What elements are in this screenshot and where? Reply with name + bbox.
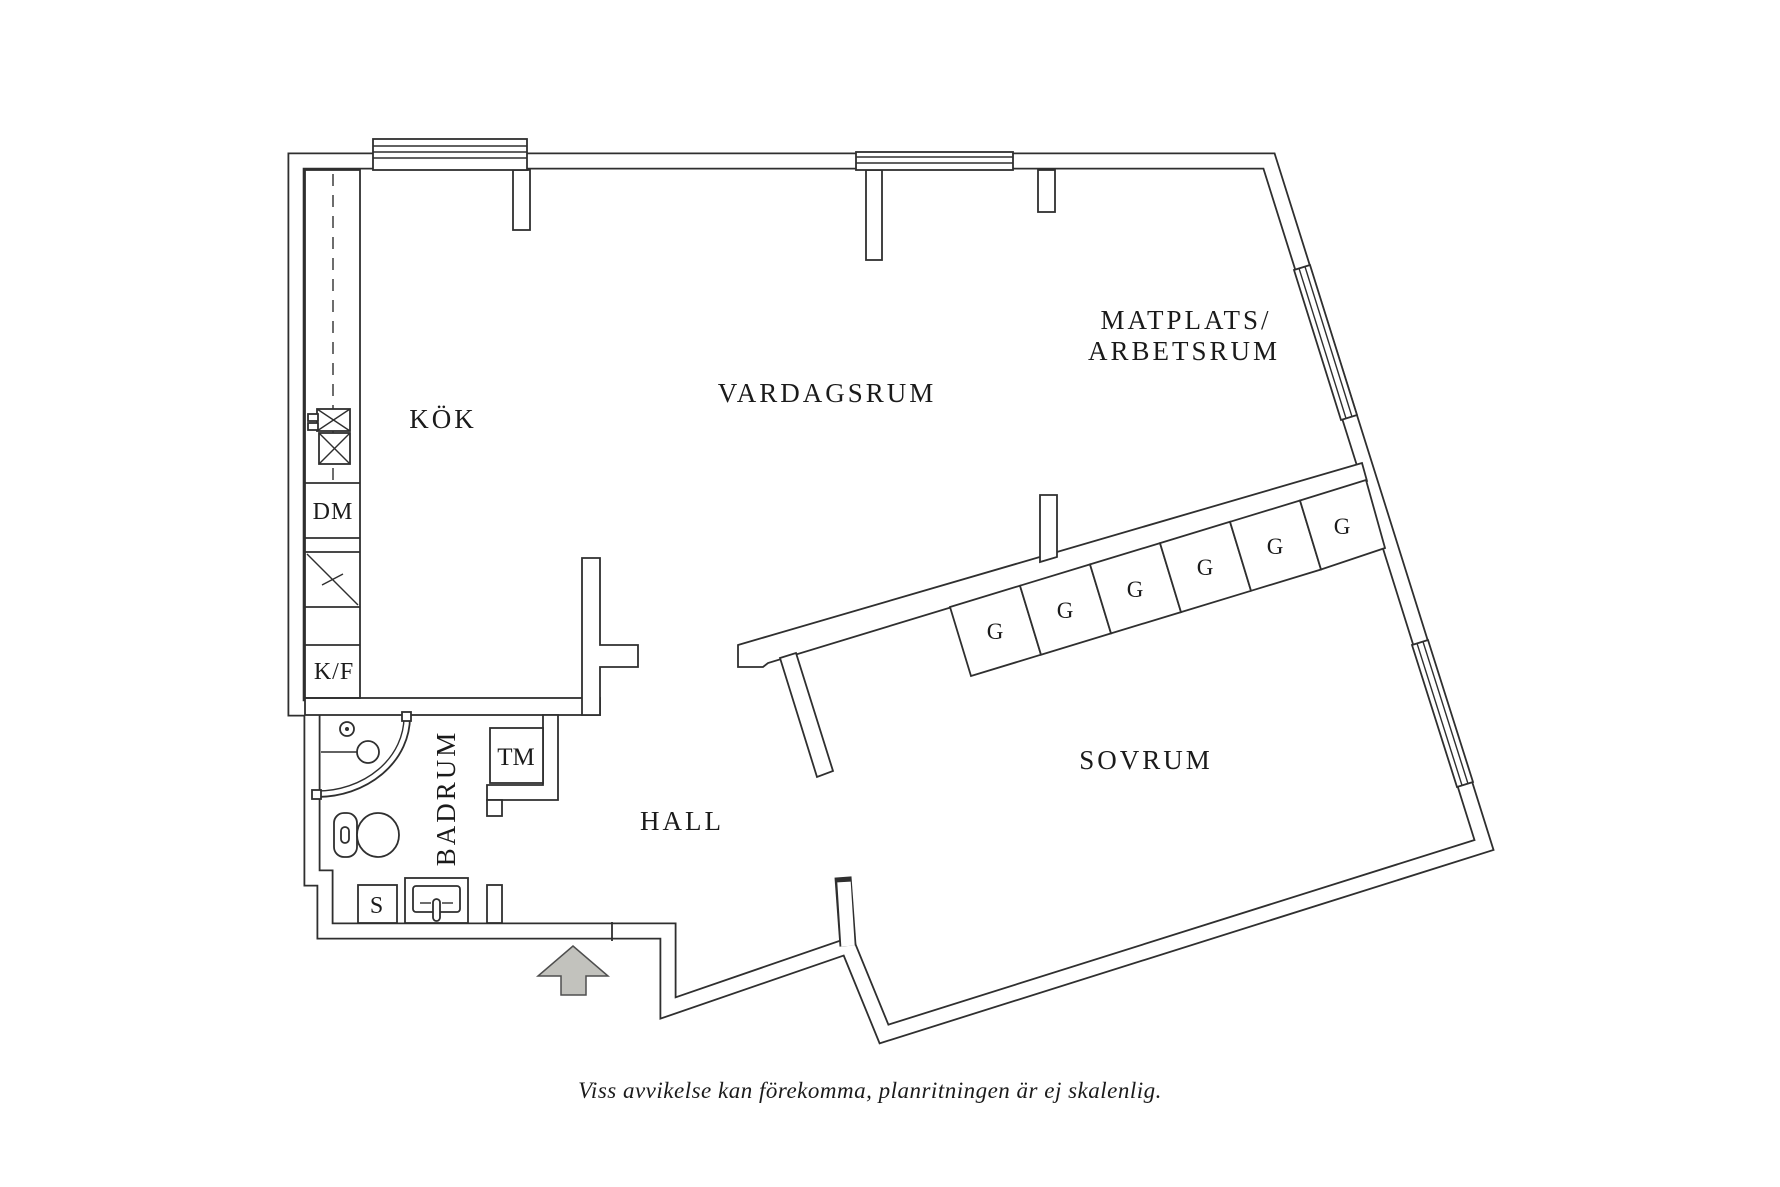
- label-kitchen: KÖK: [409, 404, 477, 434]
- top-wall-pier-1: [513, 170, 530, 230]
- tm-alcove-step: [487, 800, 502, 816]
- label-hall: HALL: [640, 806, 724, 836]
- floor-plan-page: KÖK VARDAGSRUM MATPLATS/ ARBETSRUM SOVRU…: [0, 0, 1780, 1187]
- label-dishwasher: DM: [313, 499, 354, 525]
- label-wardrobe-4: G: [1197, 555, 1214, 580]
- bathroom-door-pier: [487, 885, 502, 923]
- label-dining-line1: MATPLATS/: [1100, 305, 1271, 335]
- top-wall-pier-3: [1038, 170, 1055, 212]
- bedroom-west-wall: [843, 877, 848, 946]
- disclaimer-text: Viss avvikelse kan förekomma, planritnin…: [578, 1078, 1162, 1103]
- shower-head-icon: [321, 722, 379, 763]
- label-wardrobe-5: G: [1267, 534, 1284, 559]
- window-dining: [1294, 265, 1357, 420]
- label-fridge-freezer: K/F: [314, 659, 354, 685]
- top-wall-pier-2: [866, 170, 882, 260]
- entrance-arrow-icon: [538, 946, 608, 995]
- kitchen-south-wall: [305, 698, 600, 715]
- toilet: [334, 813, 399, 857]
- label-wardrobe-1: G: [987, 619, 1004, 644]
- label-bedroom: SOVRUM: [1079, 745, 1213, 775]
- window-top-1: [373, 139, 527, 170]
- label-dining-line2: ARBETSRUM: [1088, 336, 1280, 366]
- label-wardrobe-2: G: [1057, 598, 1074, 623]
- label-bathroom: BADRUM: [431, 730, 461, 867]
- label-wardrobe-6: G: [1334, 514, 1351, 539]
- label-utility-s: S: [370, 893, 384, 919]
- washbasin: [405, 878, 468, 923]
- hob-symbol: [307, 554, 358, 605]
- living-dining-pier: [1040, 495, 1057, 562]
- kitchen-sink: [308, 409, 350, 464]
- label-living-room: VARDAGSRUM: [718, 378, 937, 408]
- kitchen-east-wall: [582, 558, 638, 715]
- floor-plan-canvas: KÖK VARDAGSRUM MATPLATS/ ARBETSRUM SOVRU…: [0, 0, 1780, 1187]
- label-washing-machine: TM: [497, 744, 535, 771]
- window-top-2: [856, 152, 1013, 170]
- window-bedroom: [1412, 640, 1473, 787]
- bedroom-door-stub: [780, 653, 833, 777]
- label-wardrobe-3: G: [1127, 577, 1144, 602]
- shower: [312, 712, 411, 799]
